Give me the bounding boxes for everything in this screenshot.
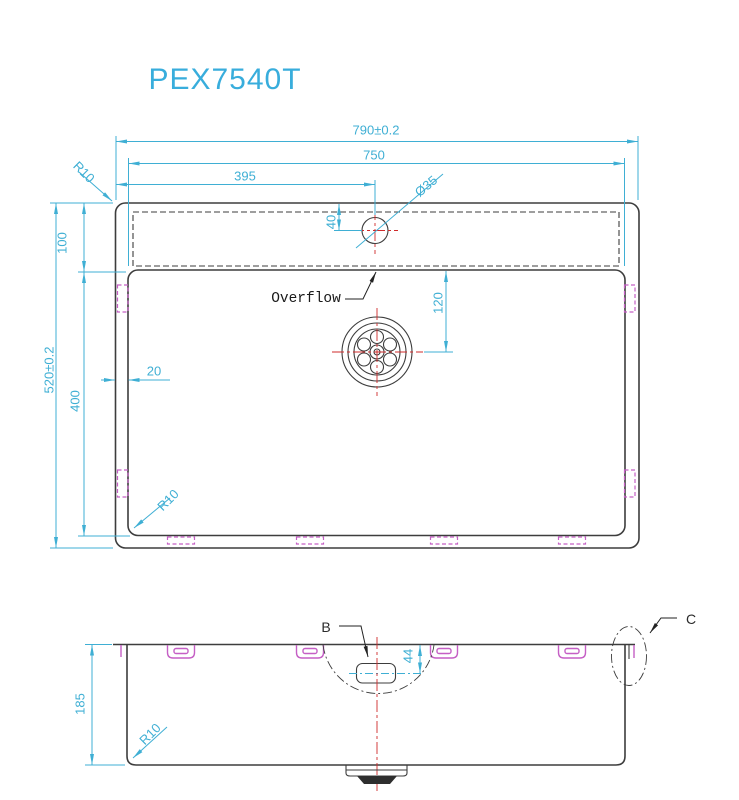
- dim-faucet-offset-label: 395: [234, 170, 256, 183]
- clip-bottom-1: [168, 537, 195, 544]
- mounting-clips-front-view: [168, 645, 586, 658]
- clip-bottom-3: [431, 537, 458, 544]
- dim-overall-width-label: 790±0.2: [353, 124, 400, 137]
- front-view-dimensions: [85, 645, 420, 766]
- sink-technical-drawing: [0, 0, 739, 800]
- clip-right-lower: [625, 470, 636, 497]
- clip-left-lower: [118, 470, 129, 497]
- dim-rim-gap-label: 20: [147, 365, 161, 378]
- dim-bowl-width-label: 750: [363, 149, 385, 162]
- clip-left-upper: [118, 285, 129, 312]
- clip-bottom-4: [559, 537, 586, 544]
- detail-c-label: C: [686, 612, 696, 626]
- bowl-outline: [128, 270, 625, 536]
- dim-drain-offset-label: 120: [432, 292, 445, 314]
- overflow-leader: [345, 272, 376, 299]
- overflow-label: Overflow: [271, 292, 341, 307]
- drain-tailpiece: [357, 776, 397, 784]
- front-body-outline: [127, 645, 625, 766]
- drain-strainer: [332, 308, 423, 396]
- top-view: [50, 136, 639, 548]
- drawing-title: PEX7540T: [148, 65, 301, 95]
- clip-bottom-2: [297, 537, 324, 544]
- mounting-clips-top-view: [118, 285, 636, 544]
- detail-b-label: B: [321, 620, 330, 634]
- clip-right-upper: [625, 285, 636, 312]
- deck-hidden-line: [133, 212, 619, 266]
- dim-height-label: 185: [74, 693, 87, 715]
- dim-deck-depth-label: 100: [56, 232, 69, 254]
- detail-b-leader: [339, 626, 368, 657]
- dim-faucet-setback-label: 40: [325, 215, 338, 229]
- dim-overflow-depth-label: 44: [402, 649, 415, 663]
- front-view: [85, 618, 677, 791]
- dim-bowl-depth-label: 400: [69, 390, 82, 412]
- detail-b-circle: [323, 645, 434, 694]
- dim-overall-depth-label: 520±0.2: [43, 347, 56, 394]
- drawing-canvas: PEX7540T 790±0.2 750 395 Ø35 R10 100 520…: [0, 0, 739, 800]
- drain-fitting-front: [346, 765, 407, 784]
- detail-c-leader: [650, 618, 677, 633]
